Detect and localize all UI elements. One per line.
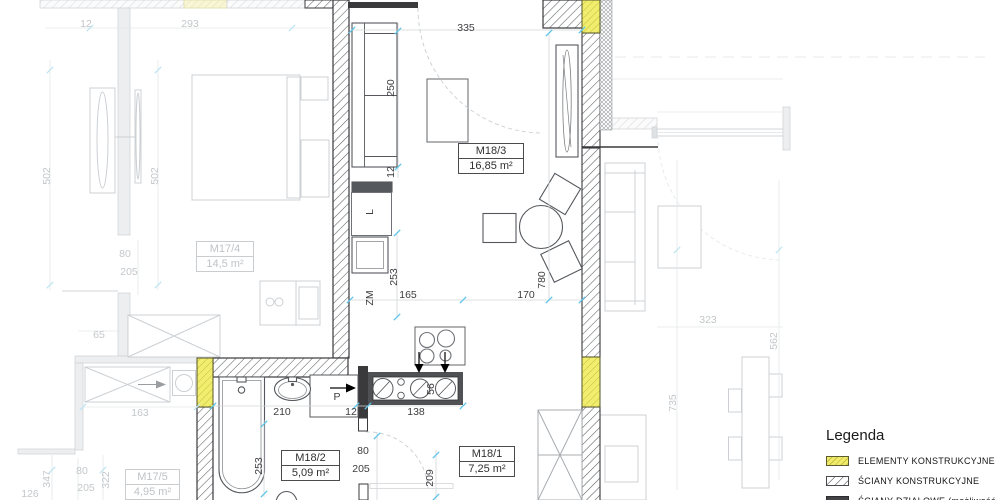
room-label-m17-4: M17/4 14,5 m²	[196, 241, 254, 272]
room-area: 7,25 m²	[460, 462, 514, 476]
dim-138: 138	[407, 406, 425, 418]
room-label-m17-5: M17/5 4,95 m²	[125, 469, 180, 500]
legend-label: ELEMENTY KONSTRUKCYJNE	[858, 456, 995, 466]
diagonal-hatch-swatch	[826, 476, 849, 486]
dim-170: 170	[517, 289, 535, 301]
hall-wardrobe	[538, 410, 582, 500]
dim-253-column: 253	[388, 268, 400, 286]
dim-65: 65	[93, 329, 105, 341]
legend-label: ŚCIANY DZIAŁOWE (możliwość	[858, 496, 996, 500]
yellow-hatch-swatch	[826, 456, 849, 466]
room-label-m18-1: M18/1 7,25 m²	[459, 446, 515, 477]
dim-293: 293	[181, 18, 199, 30]
room-area: 14,5 m²	[197, 257, 253, 271]
room-label-m18-2: M18/2 5,09 m²	[281, 450, 340, 481]
dim-780: 780	[536, 271, 548, 289]
legend-item-partition-walls: ŚCIANY DZIAŁOWE (możliwość	[826, 496, 996, 500]
room-area: 5,09 m²	[282, 466, 339, 480]
dim-502-b: 502	[149, 167, 161, 185]
dim-205-hall: 205	[352, 463, 370, 475]
legend-label: ŚCIANY KONSTRUKCYJNE	[858, 476, 979, 486]
dim-12-bath: 12	[345, 406, 357, 418]
legend-title: Legenda	[826, 427, 996, 444]
dim-56: 56	[425, 383, 437, 395]
dim-126: 126	[21, 488, 39, 500]
floor-plan: 335 250 12 253 165 170 780 210 12 138 56…	[0, 0, 1000, 500]
dim-80-left: 80	[76, 465, 88, 477]
dim-347: 347	[41, 470, 53, 488]
dim-335: 335	[457, 22, 475, 34]
dim-80-bed: 80	[119, 248, 131, 260]
dim-253-bath: 253	[253, 457, 265, 475]
floor-plan-drawing	[0, 0, 1000, 500]
room-area: 4,95 m²	[126, 485, 179, 499]
dim-502-a: 502	[41, 167, 53, 185]
washer-marker: P	[333, 391, 340, 403]
dim-80-hall: 80	[357, 445, 369, 457]
dim-250: 250	[385, 79, 397, 97]
room-id: M17/4	[197, 242, 253, 257]
dim-210: 210	[273, 406, 291, 418]
room-label-m18-3: M18/3 16,85 m²	[458, 143, 524, 174]
dim-12-top: 12	[80, 18, 92, 30]
dim-735: 735	[667, 394, 679, 412]
dim-322: 322	[100, 471, 112, 489]
dim-323: 323	[699, 314, 717, 326]
room-id: M18/3	[459, 144, 523, 159]
room-id: M17/5	[126, 470, 179, 485]
legend-item-structural-walls: ŚCIANY KONSTRUKCYJNE	[826, 476, 996, 486]
dishwasher-marker: ZM	[364, 290, 376, 305]
room-id: M18/2	[282, 451, 339, 466]
dim-205-bed: 205	[120, 266, 138, 278]
solid-dark-swatch	[826, 496, 849, 500]
dim-165: 165	[399, 289, 417, 301]
room-id: M18/1	[460, 447, 514, 462]
room-area: 16,85 m²	[459, 159, 523, 173]
legend: Legenda ELEMENTY KONSTRUKCYJNE ŚCIANY KO…	[826, 427, 996, 500]
dim-562: 562	[768, 332, 780, 350]
dim-209: 209	[424, 469, 436, 487]
legend-item-structural-elements: ELEMENTY KONSTRUKCYJNE	[826, 456, 996, 466]
dim-163: 163	[131, 407, 149, 419]
fridge-marker: L	[364, 209, 376, 215]
dim-205-left: 205	[77, 482, 95, 494]
dim-12-sofa: 12	[385, 166, 397, 178]
